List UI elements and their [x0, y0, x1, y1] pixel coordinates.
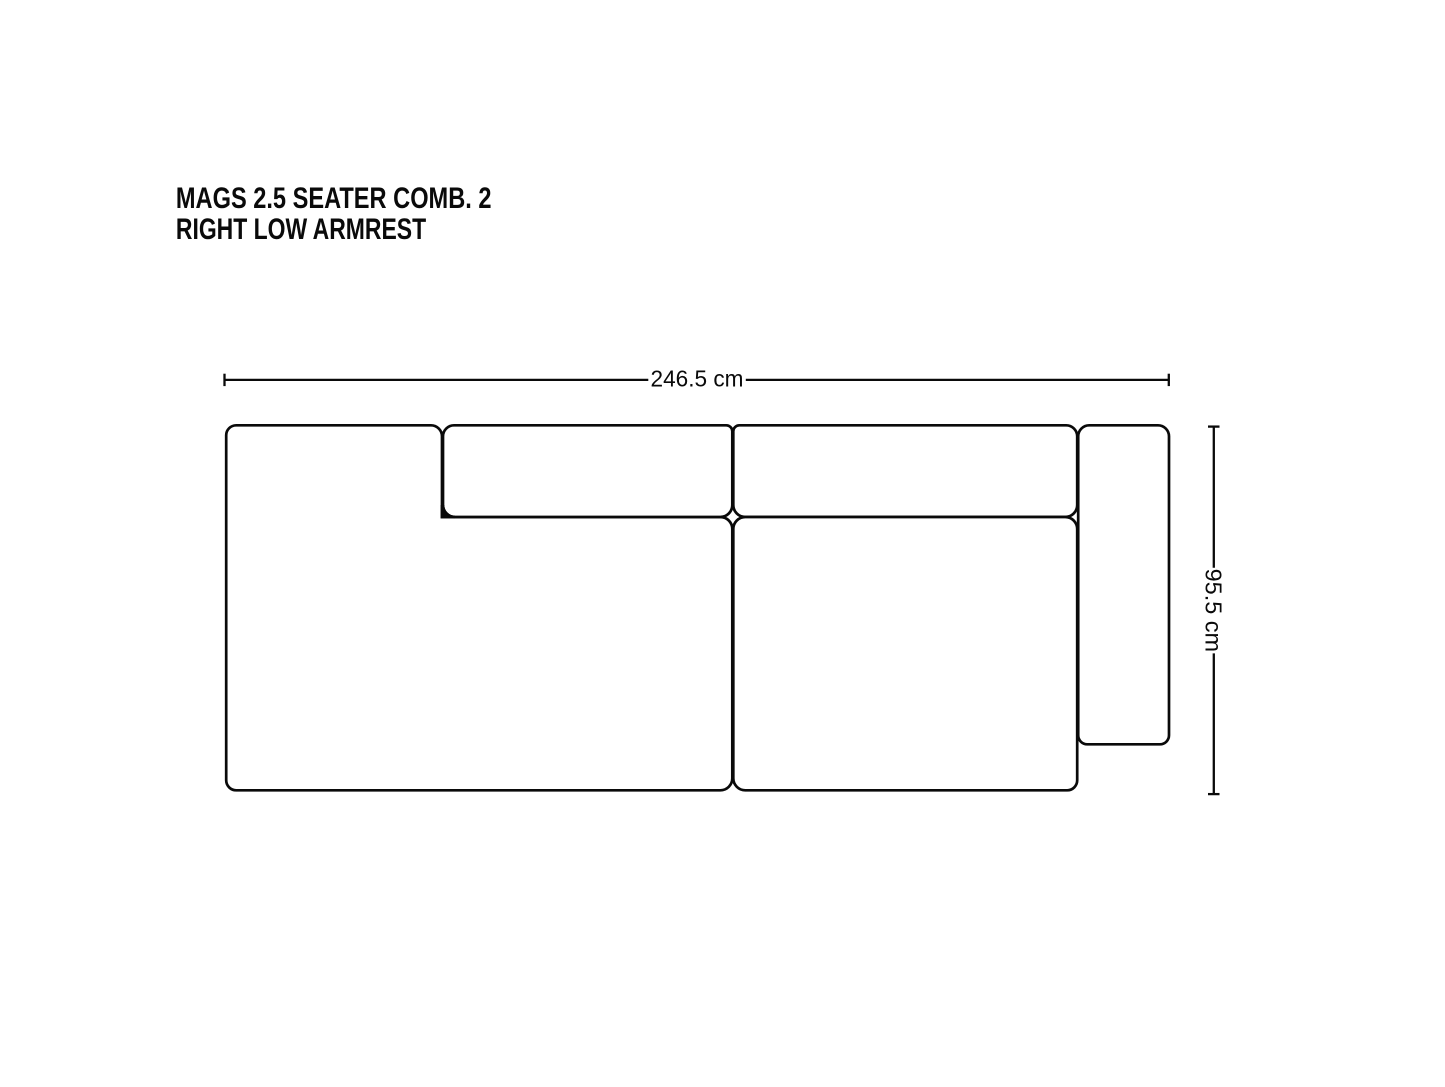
svg-text:MAGS 2.5 SEATER COMB. 2: MAGS 2.5 SEATER COMB. 2: [176, 182, 492, 215]
svg-text:246.5 cm: 246.5 cm: [651, 366, 744, 392]
svg-text:RIGHT LOW ARMREST: RIGHT LOW ARMREST: [176, 213, 426, 246]
svg-text:95.5 cm: 95.5 cm: [1200, 569, 1226, 653]
